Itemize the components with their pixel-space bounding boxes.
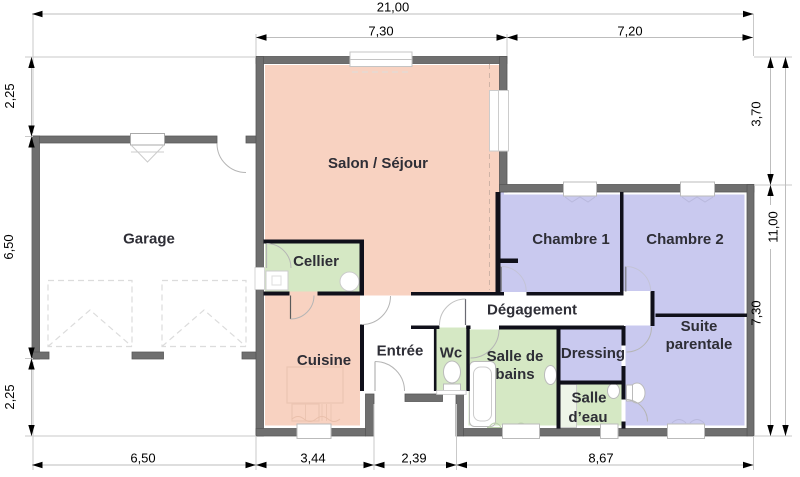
svg-text:Dressing: Dressing bbox=[561, 345, 625, 362]
svg-text:21,00: 21,00 bbox=[377, 0, 410, 15]
svg-text:3,44: 3,44 bbox=[300, 451, 325, 466]
svg-text:2,25: 2,25 bbox=[2, 83, 17, 108]
svg-text:Entrée: Entrée bbox=[377, 343, 424, 360]
svg-text:2,25: 2,25 bbox=[2, 384, 17, 409]
svg-text:Dégagement: Dégagement bbox=[487, 302, 577, 319]
svg-text:parentale: parentale bbox=[666, 336, 733, 353]
svg-text:Chambre 2: Chambre 2 bbox=[646, 231, 724, 248]
svg-text:2,39: 2,39 bbox=[401, 451, 426, 466]
svg-text:8,67: 8,67 bbox=[588, 451, 613, 466]
svg-text:Cuisine: Cuisine bbox=[297, 352, 351, 369]
svg-text:Chambre 1: Chambre 1 bbox=[532, 231, 610, 248]
svg-text:Salon / Séjour: Salon / Séjour bbox=[328, 155, 428, 172]
svg-text:11,00: 11,00 bbox=[766, 211, 781, 243]
svg-text:7,30: 7,30 bbox=[368, 24, 393, 39]
svg-text:Salle de: Salle de bbox=[487, 348, 544, 365]
svg-text:Garage: Garage bbox=[123, 231, 175, 248]
svg-text:bains: bains bbox=[495, 366, 534, 383]
svg-text:d’eau: d’eau bbox=[568, 409, 607, 426]
svg-text:7,30: 7,30 bbox=[749, 300, 764, 325]
svg-text:6,50: 6,50 bbox=[130, 451, 155, 466]
svg-text:7,20: 7,20 bbox=[617, 24, 642, 39]
svg-text:6,50: 6,50 bbox=[1, 234, 16, 259]
svg-text:Salle: Salle bbox=[571, 390, 606, 407]
svg-text:Cellier: Cellier bbox=[293, 253, 339, 270]
svg-text:Suite: Suite bbox=[681, 318, 718, 335]
svg-text:3,70: 3,70 bbox=[749, 101, 764, 126]
svg-text:Wc: Wc bbox=[440, 345, 463, 362]
